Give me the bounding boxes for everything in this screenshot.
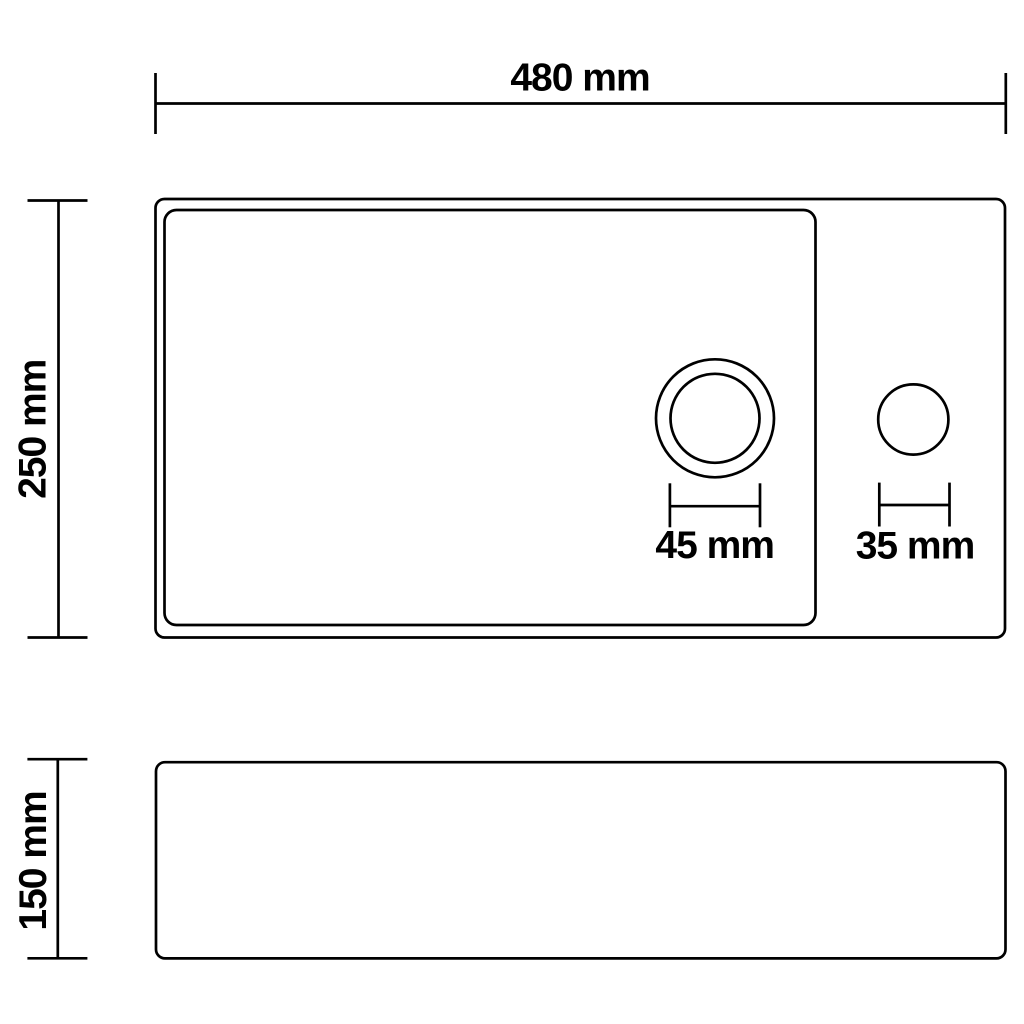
svg-text:45 mm: 45 mm <box>655 524 774 567</box>
svg-text:250 mm: 250 mm <box>12 360 55 499</box>
svg-text:480 mm: 480 mm <box>510 57 649 100</box>
svg-text:150 mm: 150 mm <box>12 791 55 930</box>
svg-text:35 mm: 35 mm <box>856 525 975 568</box>
